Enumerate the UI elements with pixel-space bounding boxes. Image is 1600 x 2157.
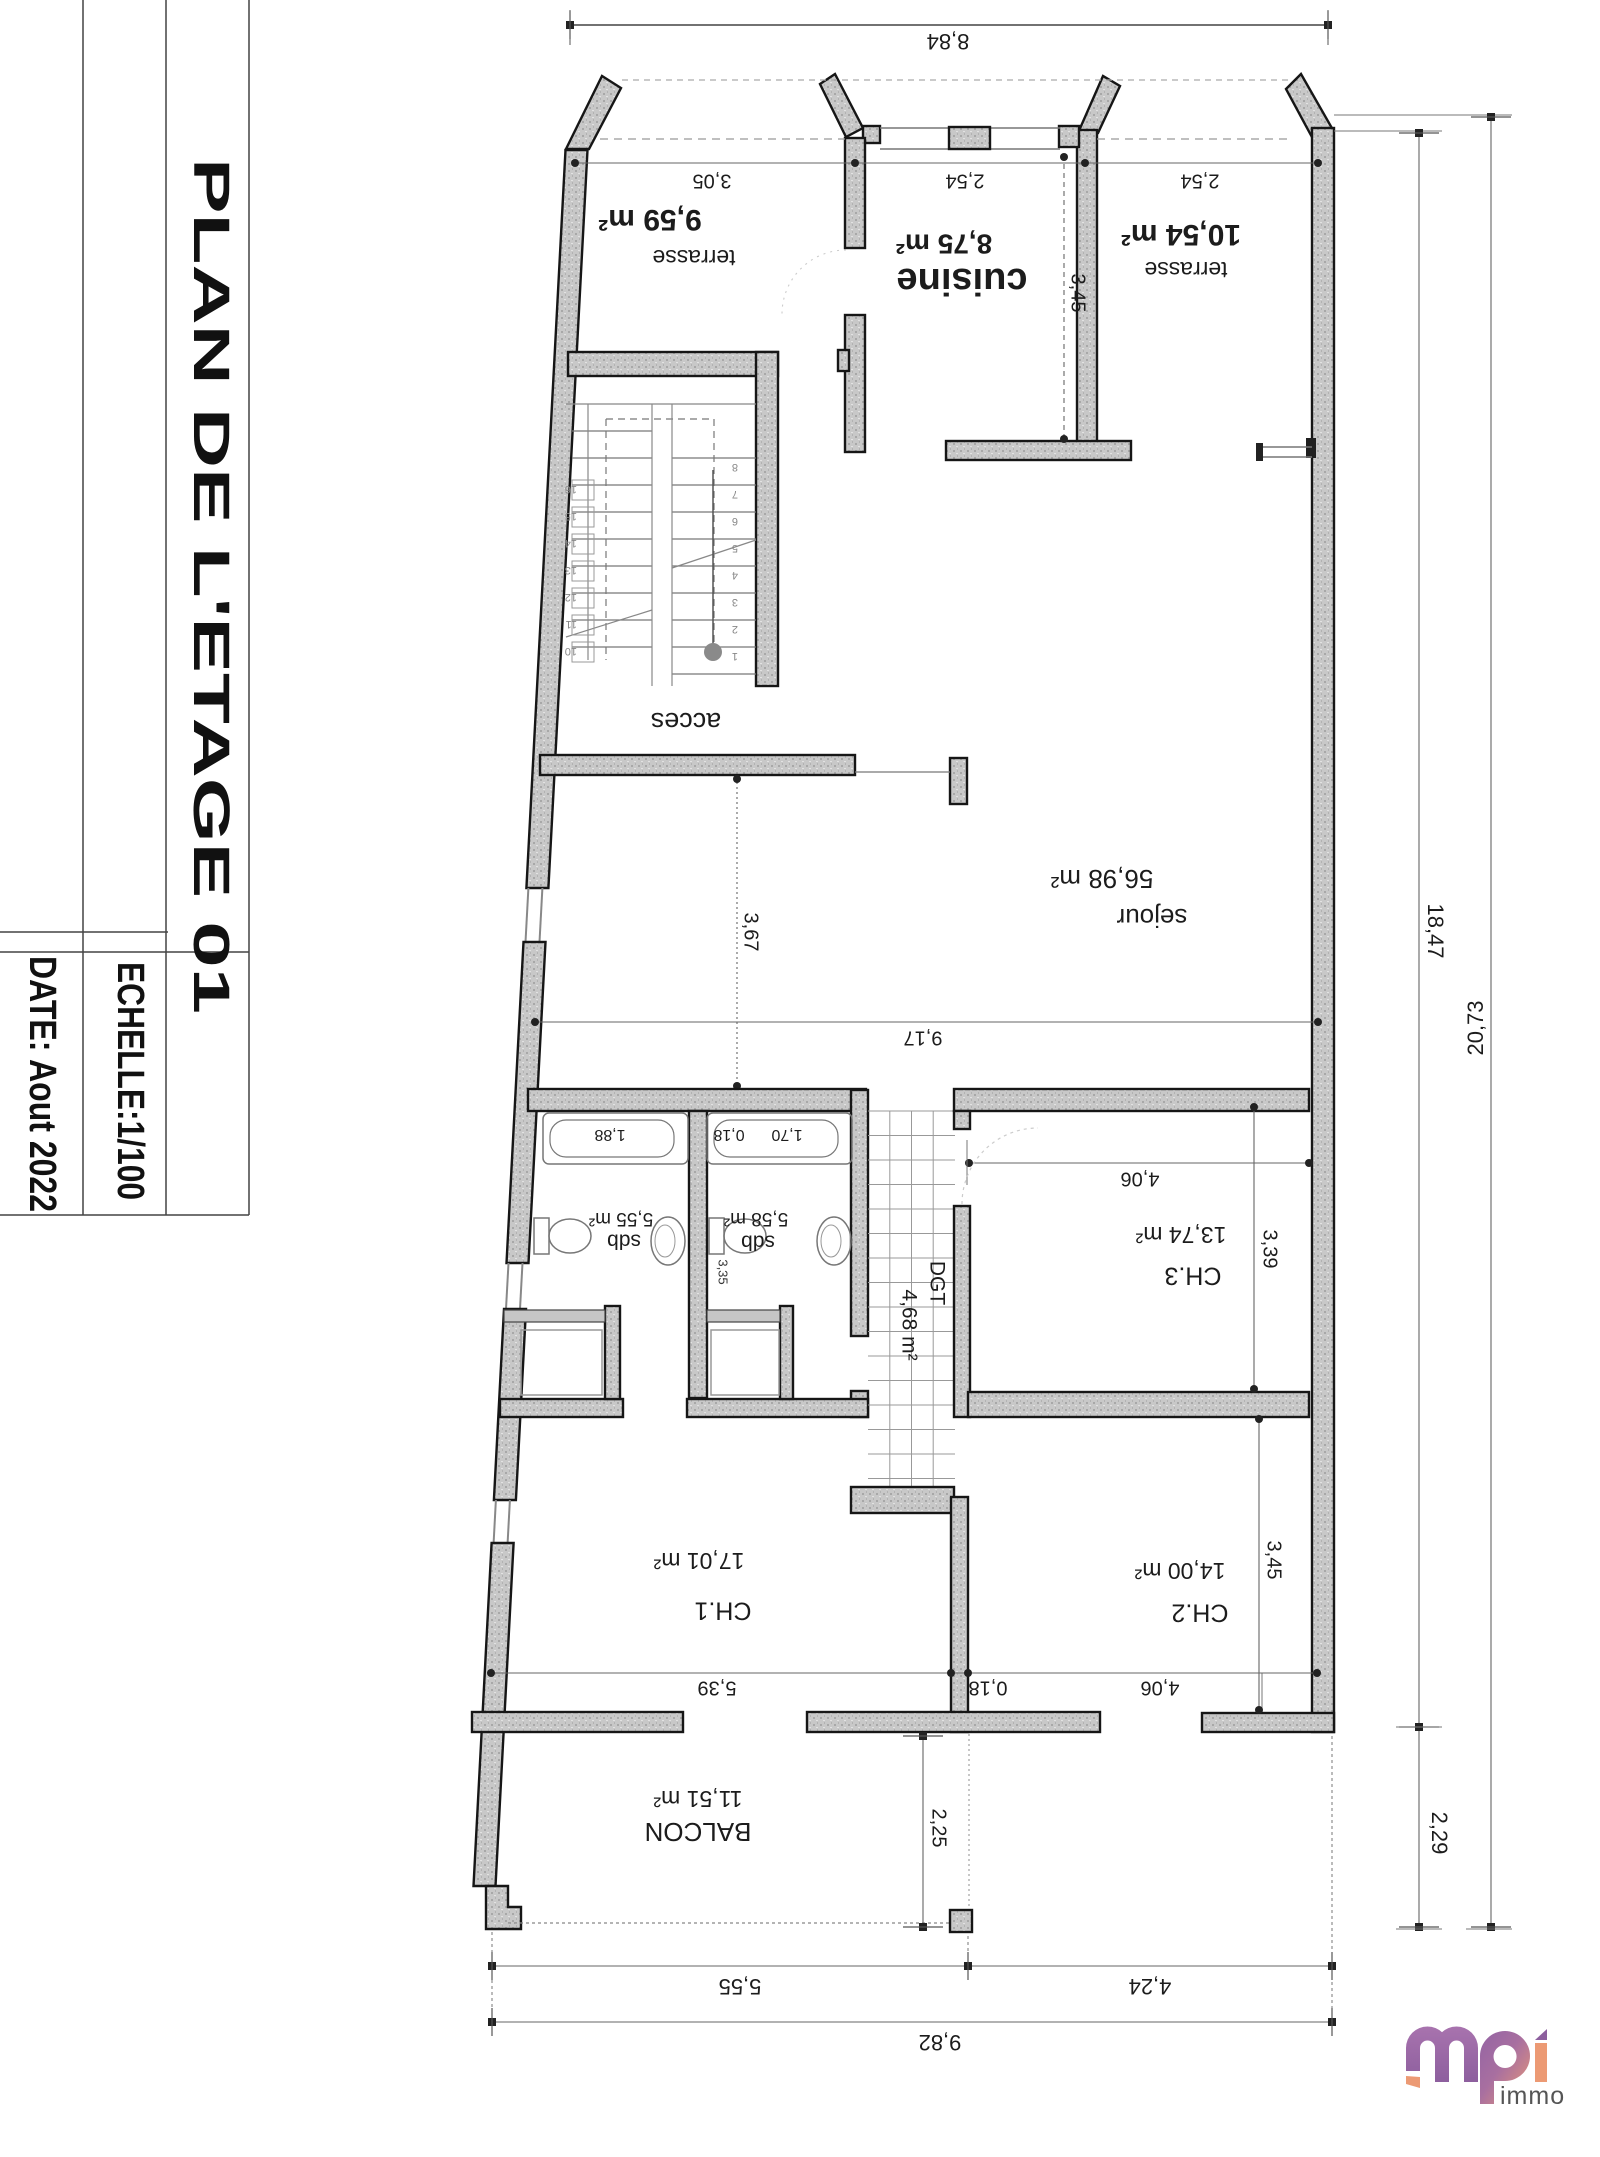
svg-text:3: 3	[732, 596, 738, 608]
svg-text:9,82: 9,82	[919, 2030, 962, 2055]
svg-text:11: 11	[566, 618, 577, 630]
svg-text:16: 16	[565, 483, 577, 495]
svg-text:6: 6	[732, 515, 738, 527]
svg-text:8,75 m²: 8,75 m²	[896, 229, 993, 260]
svg-text:3,45: 3,45	[1067, 274, 1089, 313]
svg-text:2: 2	[732, 623, 738, 635]
svg-text:15: 15	[565, 510, 577, 522]
svg-text:terrasse: terrasse	[1144, 257, 1227, 283]
svg-text:1,88: 1,88	[594, 1126, 625, 1143]
svg-text:3,67: 3,67	[740, 913, 762, 952]
svg-text:immo: immo	[1500, 2082, 1565, 2110]
svg-text:1,70: 1,70	[771, 1126, 802, 1143]
svg-text:5,58 m²: 5,58 m²	[724, 1208, 788, 1229]
svg-text:7: 7	[732, 488, 738, 500]
svg-text:CH.1: CH.1	[695, 1596, 752, 1624]
svg-text:2,54: 2,54	[1181, 170, 1220, 192]
svg-text:18,47: 18,47	[1423, 903, 1448, 958]
svg-text:5,55 m²: 5,55 m²	[589, 1208, 653, 1229]
svg-text:20,73: 20,73	[1463, 1000, 1488, 1055]
svg-text:cuisine: cuisine	[897, 260, 1028, 302]
svg-text:56,98 m²: 56,98 m²	[1050, 864, 1153, 894]
svg-text:8,84: 8,84	[927, 29, 970, 54]
svg-text:10: 10	[565, 645, 577, 657]
svg-text:9,59 m²: 9,59 m²	[598, 203, 701, 236]
svg-text:3,45: 3,45	[1263, 1541, 1285, 1580]
svg-text:12: 12	[565, 591, 577, 603]
svg-text:10,54 m²: 10,54 m²	[1121, 218, 1241, 251]
svg-text:17,01 m²: 17,01 m²	[653, 1548, 744, 1574]
svg-text:0,18: 0,18	[969, 1677, 1008, 1699]
svg-text:sejour: sejour	[1116, 903, 1187, 933]
svg-text:CH.3: CH.3	[1165, 1261, 1222, 1289]
svg-text:3,05: 3,05	[693, 170, 732, 192]
svg-text:0,18: 0,18	[713, 1126, 744, 1143]
svg-text:14,00 m²: 14,00 m²	[1134, 1558, 1225, 1584]
svg-text:1: 1	[732, 650, 738, 662]
svg-text:4,24: 4,24	[1129, 1974, 1172, 1999]
svg-text:3,35: 3,35	[716, 1259, 731, 1284]
svg-text:4,06: 4,06	[1121, 1168, 1160, 1190]
svg-text:9,17: 9,17	[904, 1027, 943, 1049]
svg-text:CH.2: CH.2	[1172, 1598, 1229, 1626]
svg-text:11,51 m²: 11,51 m²	[653, 1786, 742, 1812]
svg-text:4,68 m²: 4,68 m²	[897, 1289, 920, 1360]
svg-text:4: 4	[732, 569, 738, 581]
svg-text:13,74 m²: 13,74 m²	[1135, 1222, 1226, 1248]
svg-text:2,25: 2,25	[928, 1809, 950, 1848]
svg-text:sdb: sdb	[741, 1230, 775, 1253]
svg-text:BALCON: BALCON	[645, 1817, 752, 1847]
svg-text:5,55: 5,55	[719, 1974, 762, 1999]
svg-text:ECHELLE:1/100: ECHELLE:1/100	[109, 962, 151, 1200]
svg-text:2,29: 2,29	[1427, 1812, 1452, 1855]
svg-text:8: 8	[732, 461, 738, 473]
svg-text:14: 14	[565, 537, 577, 549]
svg-text:2,54: 2,54	[946, 170, 985, 192]
svg-text:PLAN DE L'ETAGE 01: PLAN DE L'ETAGE 01	[183, 158, 240, 1014]
svg-text:DATE: Aout 2022: DATE: Aout 2022	[21, 956, 63, 1212]
svg-text:5,39: 5,39	[698, 1677, 737, 1699]
svg-text:5: 5	[732, 542, 738, 554]
svg-text:4,06: 4,06	[1141, 1677, 1180, 1699]
svg-text:3,39: 3,39	[1259, 1230, 1281, 1269]
svg-text:terrasse: terrasse	[652, 245, 735, 271]
svg-text:DGT: DGT	[925, 1261, 948, 1306]
svg-text:acces: acces	[651, 707, 722, 737]
svg-text:13: 13	[565, 564, 577, 576]
svg-text:sdb: sdb	[607, 1229, 641, 1252]
